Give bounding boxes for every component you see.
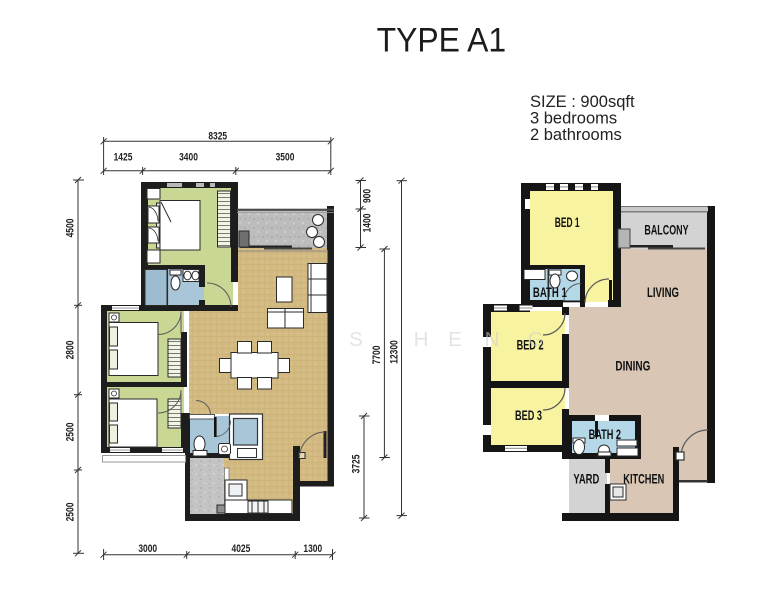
svg-text:H: H [414,328,429,351]
svg-text:8325: 8325 [208,131,227,143]
svg-text:YARD: YARD [573,472,599,487]
svg-text:4500: 4500 [65,219,77,238]
svg-text:TYPE A1: TYPE A1 [377,21,507,59]
svg-text:2 bathrooms: 2 bathrooms [530,126,622,144]
svg-text:2500: 2500 [65,503,77,522]
svg-text:KITCHEN: KITCHEN [623,473,664,487]
svg-text:BATH 2: BATH 2 [589,428,621,442]
svg-text:1400: 1400 [362,214,374,233]
svg-text:LIVING: LIVING [647,285,679,300]
svg-text:2800: 2800 [65,341,77,360]
svg-text:SIZE : 900sqft: SIZE : 900sqft [530,93,635,111]
svg-text:7700: 7700 [371,346,383,365]
svg-text:3400: 3400 [179,152,198,164]
svg-text:1300: 1300 [303,543,322,555]
svg-text:4025: 4025 [232,543,251,555]
svg-text:BATH 1: BATH 1 [533,285,567,300]
svg-text:N: N [485,328,500,351]
svg-text:G: G [528,328,544,351]
svg-text:2500: 2500 [65,423,77,442]
svg-text:3725: 3725 [351,454,363,473]
svg-text:BED 1: BED 1 [555,216,580,230]
svg-text:3000: 3000 [138,543,157,555]
svg-text:12300: 12300 [389,340,401,363]
svg-text:S: S [349,328,363,351]
svg-text:BED 3: BED 3 [515,409,542,423]
svg-text:900: 900 [362,189,374,203]
svg-text:3 bedrooms: 3 bedrooms [530,110,617,128]
svg-text:BALCONY: BALCONY [644,224,688,238]
svg-text:3500: 3500 [276,152,295,164]
svg-text:DINING: DINING [615,358,650,374]
svg-text:1425: 1425 [114,152,133,164]
svg-text:E: E [448,328,462,351]
